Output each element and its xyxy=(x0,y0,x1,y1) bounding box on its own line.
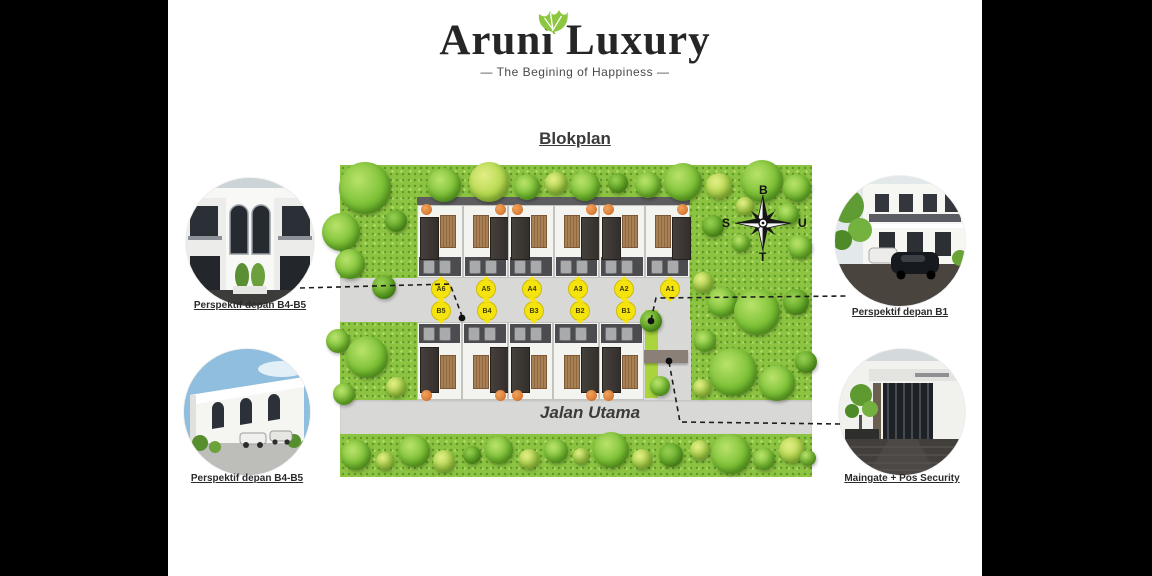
house-unit xyxy=(417,322,462,400)
inset-caption-top-right: Perspektif depan B1 xyxy=(815,307,985,318)
tree xyxy=(640,310,662,332)
compass-rose-icon xyxy=(731,191,795,255)
unit-badge-b5: B5 xyxy=(431,301,451,321)
tree xyxy=(433,450,455,472)
unit-badge-a6: A6 xyxy=(431,279,451,299)
house-facade-illustration xyxy=(186,178,314,306)
tree xyxy=(693,272,713,292)
tree xyxy=(341,440,371,470)
tree xyxy=(795,351,817,373)
monstera-leaf-icon xyxy=(536,4,570,34)
tree xyxy=(570,171,600,201)
tree xyxy=(694,330,716,352)
inset-photo-perspektif-b4b5-closeup xyxy=(186,178,314,306)
unit-badge-a3: A3 xyxy=(568,279,588,299)
house-driveway-illustration xyxy=(835,176,965,306)
house-unit xyxy=(599,322,644,400)
unit-badge-a4: A4 xyxy=(522,279,542,299)
tree xyxy=(333,383,355,405)
tree xyxy=(800,450,816,466)
tree xyxy=(664,163,702,201)
tree xyxy=(690,440,710,460)
tree xyxy=(386,377,406,397)
inset-caption-bottom-right: Maingate + Pos Security xyxy=(817,473,987,484)
compass-label-north: U xyxy=(798,216,807,230)
tree xyxy=(707,287,737,317)
unit-badge-b2: B2 xyxy=(570,301,590,321)
inset-caption-top-left: Perspektif depan B4-B5 xyxy=(165,300,335,311)
tree xyxy=(544,439,568,463)
tree xyxy=(573,448,589,464)
unit-badge-a1: A1 xyxy=(660,279,680,299)
compass-label-west: B xyxy=(759,183,768,197)
tree xyxy=(659,443,683,467)
house-unit xyxy=(645,205,691,278)
tree xyxy=(346,336,388,378)
unit-badge-b4: B4 xyxy=(477,301,497,321)
tree xyxy=(783,289,809,315)
tree xyxy=(372,275,396,299)
tagline: — The Begining of Happiness — xyxy=(168,65,982,79)
tree xyxy=(706,173,732,199)
maingate-bar xyxy=(643,350,688,363)
house-unit xyxy=(599,205,645,278)
main-road-label: Jalan Utama xyxy=(500,403,680,423)
tree xyxy=(759,365,795,401)
tree xyxy=(519,449,539,469)
tree xyxy=(322,213,360,251)
tree xyxy=(376,452,394,470)
tree xyxy=(593,432,629,468)
tree xyxy=(463,446,481,464)
page-title: Aruni Luxury xyxy=(168,16,982,65)
inset-photo-maingate xyxy=(839,349,965,475)
tree xyxy=(514,174,540,200)
house-row-illustration xyxy=(184,349,310,475)
tree xyxy=(650,376,670,396)
tree xyxy=(335,249,365,279)
tree xyxy=(693,379,711,397)
tree xyxy=(632,449,652,469)
house-unit xyxy=(463,205,509,278)
tree xyxy=(711,434,751,474)
house-unit xyxy=(508,205,554,278)
house-unit xyxy=(554,205,600,278)
house-unit xyxy=(553,322,598,400)
unit-badge-a2: A2 xyxy=(614,279,634,299)
maingate-illustration xyxy=(839,349,965,475)
tree xyxy=(485,436,513,464)
inset-photo-perspektif-b1 xyxy=(835,176,965,306)
unit-badge-a5: A5 xyxy=(476,279,496,299)
tree xyxy=(385,210,407,232)
tree xyxy=(702,215,724,237)
tree xyxy=(608,173,628,193)
house-unit xyxy=(462,322,507,400)
compass-label-east: T xyxy=(759,250,766,264)
row-a-back-alley xyxy=(417,197,690,205)
compass-label-south: S xyxy=(722,216,730,230)
tree xyxy=(545,172,567,194)
tree xyxy=(709,348,757,396)
tree xyxy=(469,162,509,202)
inset-photo-perspektif-b4b5-row xyxy=(184,349,310,475)
house-unit xyxy=(508,322,553,400)
tree xyxy=(635,172,661,198)
slide: Aruni Luxury — The Begining of Happiness… xyxy=(0,0,1152,576)
tree xyxy=(398,435,430,467)
house-unit xyxy=(417,205,463,278)
tree xyxy=(339,162,391,214)
tree xyxy=(753,448,775,470)
blokplan-heading: Blokplan xyxy=(168,129,982,149)
tree xyxy=(734,289,780,335)
inset-caption-bottom-left: Perspektif depan B4-B5 xyxy=(162,473,332,484)
tree xyxy=(427,168,461,202)
unit-badge-b3: B3 xyxy=(524,301,544,321)
unit-badge-b1: B1 xyxy=(616,301,636,321)
